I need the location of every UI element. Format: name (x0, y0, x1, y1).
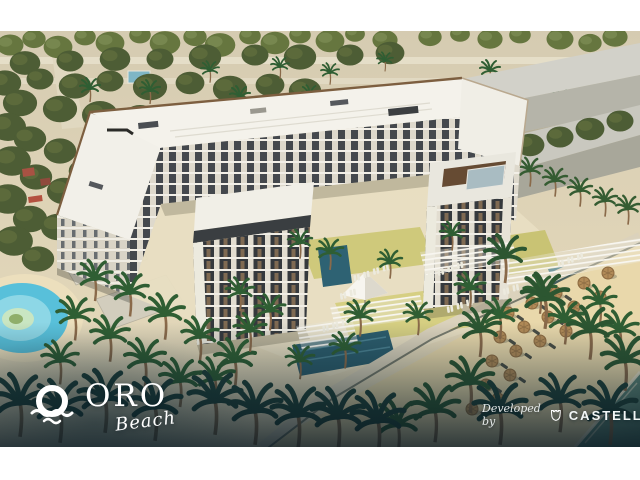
logo-wordmark: ORO Beach (85, 381, 176, 431)
developed-by-label: Developed by (482, 402, 543, 428)
sun-over-waves-icon (28, 381, 76, 429)
developer-credit: Developed by CASTELLO (482, 402, 640, 428)
developer-name: CASTELLO (569, 408, 640, 423)
hero-image: ORO Beach Developed by CASTELLO (0, 31, 640, 447)
logo-text-beach: Beach (114, 409, 177, 434)
promo-page: ORO Beach Developed by CASTELLO (0, 0, 640, 480)
top-white-margin (0, 0, 640, 31)
bottom-white-margin (0, 447, 640, 480)
logo-text-oro: ORO (85, 381, 176, 412)
castello-shield-icon (550, 407, 561, 423)
front-right-tower (423, 152, 516, 319)
oro-beach-logo: ORO Beach (28, 381, 176, 431)
